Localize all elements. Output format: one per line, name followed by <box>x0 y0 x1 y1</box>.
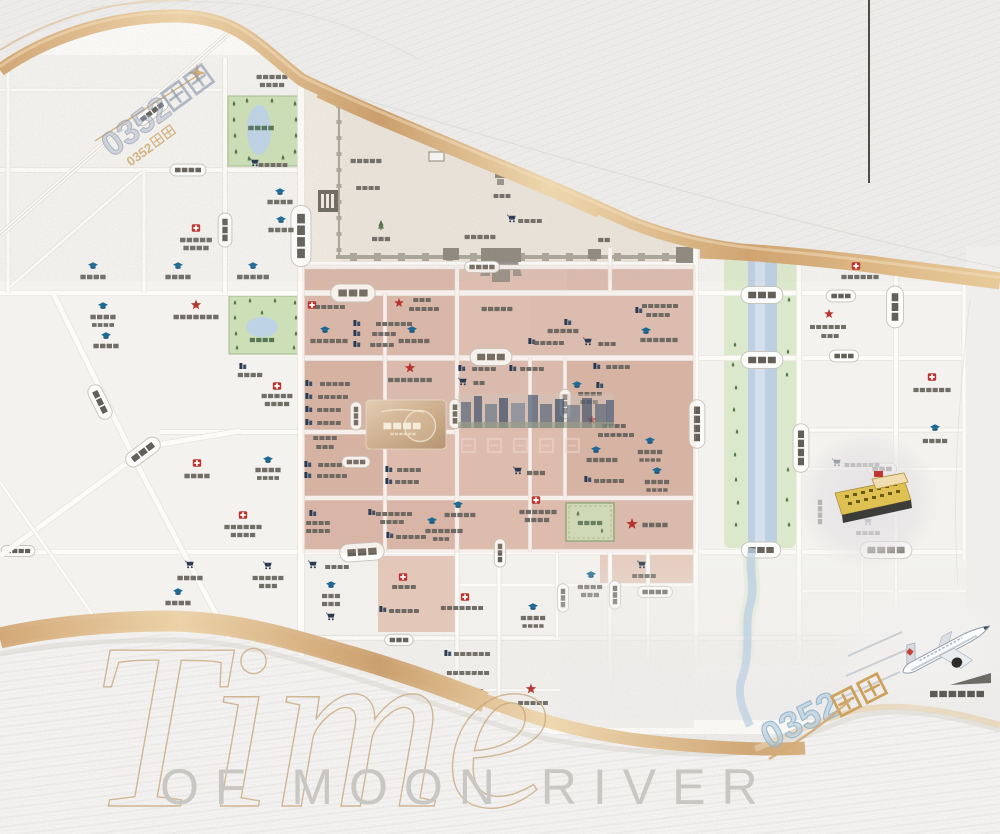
svg-text:OF MOON RIVER: OF MOON RIVER <box>160 759 774 815</box>
